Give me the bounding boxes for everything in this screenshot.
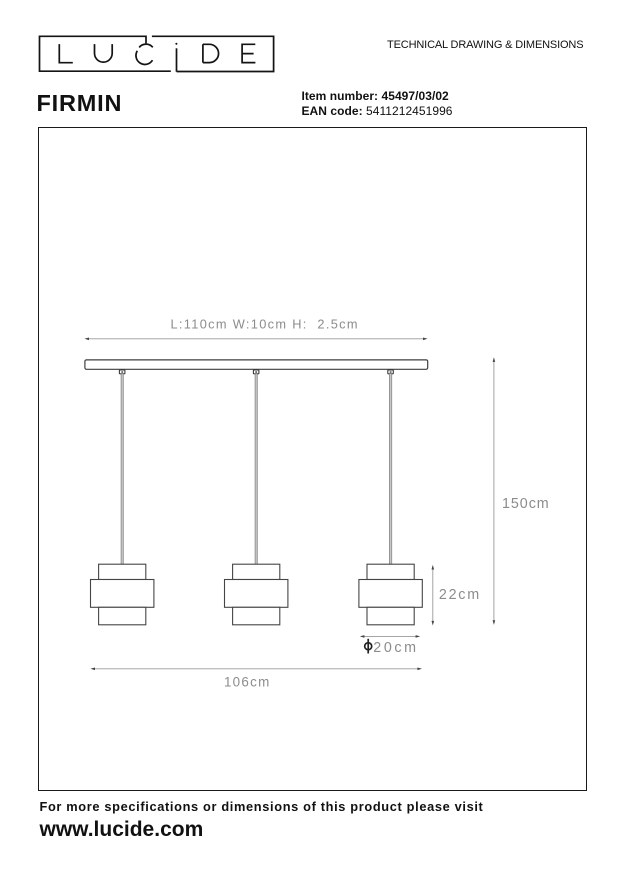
svg-text:22cm: 22cm — [439, 587, 481, 603]
svg-text:150cm: 150cm — [502, 496, 550, 512]
svg-text:20cm: 20cm — [373, 640, 418, 656]
svg-text:L:110cm W:10cm H: 2.5cm: L:110cm W:10cm H: 2.5cm — [171, 317, 359, 332]
svg-text:106cm: 106cm — [224, 675, 271, 690]
